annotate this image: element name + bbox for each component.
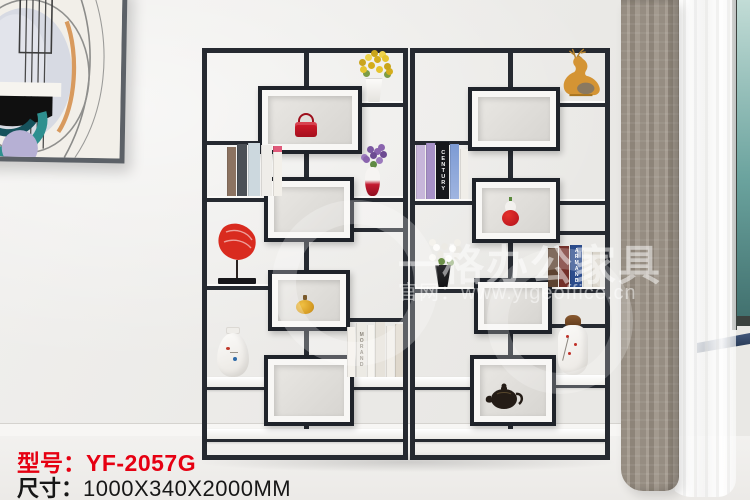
display-box bbox=[474, 278, 552, 334]
frame-connector bbox=[508, 53, 513, 87]
book-spine-morand: MORAND bbox=[356, 323, 366, 377]
marble-shelf bbox=[207, 377, 264, 390]
product-photo-scene: MORAND CENTURY bbox=[0, 0, 750, 500]
marble-shelf bbox=[415, 377, 470, 390]
shelf-ledge bbox=[544, 287, 605, 293]
white-porcelain-vase bbox=[217, 327, 249, 377]
white-book-set: MORAND bbox=[347, 321, 403, 377]
book-spine-armand: ARMAND bbox=[570, 245, 582, 287]
book-spine-century: CENTURY bbox=[436, 142, 449, 199]
frame-post bbox=[605, 48, 610, 460]
shelf-ledge bbox=[415, 287, 474, 293]
frame-bar-floor bbox=[410, 455, 610, 460]
gold-pumpkin-ornament bbox=[296, 295, 314, 314]
yellow-flowers-bucket bbox=[352, 50, 396, 101]
size-value: 1000X340X2000MM bbox=[83, 476, 291, 500]
marble-shelf bbox=[346, 377, 403, 390]
red-handbag bbox=[295, 113, 317, 137]
marble-shelf bbox=[548, 375, 605, 388]
frame-bar bbox=[346, 228, 403, 232]
model-line: 型号：YF-2057G bbox=[17, 450, 291, 476]
purple-flowers-vase bbox=[356, 144, 388, 196]
display-shelf: MORAND CENTURY bbox=[0, 0, 750, 500]
frame-post bbox=[403, 48, 408, 460]
book-set-armand: ARMAND bbox=[548, 244, 600, 287]
model-label: 型号： bbox=[17, 450, 86, 476]
shelf-ledge bbox=[346, 196, 403, 202]
product-caption: 型号：YF-2057G 尺寸：1000X340X2000MM bbox=[17, 450, 291, 500]
gold-deer-figurine bbox=[556, 47, 604, 101]
marble-shelf-bottom bbox=[207, 429, 403, 442]
black-teapot bbox=[482, 380, 526, 410]
frame-post bbox=[202, 48, 207, 460]
size-line: 尺寸：1000X340X2000MM bbox=[17, 476, 291, 500]
shelf-ledge bbox=[207, 196, 264, 202]
book-set bbox=[227, 143, 282, 196]
size-label: 尺寸： bbox=[17, 476, 83, 500]
book-set-century: CENTURY bbox=[416, 141, 468, 199]
red-gourd-vase bbox=[502, 197, 519, 228]
marble-shelf-bottom bbox=[415, 429, 605, 442]
model-value: YF-2057G bbox=[86, 450, 196, 476]
frame-connector bbox=[304, 53, 309, 86]
display-box bbox=[468, 87, 560, 151]
red-coral-sculpture bbox=[212, 218, 260, 286]
frame-post bbox=[410, 48, 415, 460]
display-box bbox=[264, 355, 354, 426]
shelf-ledge bbox=[415, 199, 472, 205]
white-flowers-black-pot bbox=[424, 241, 462, 287]
floral-painted-vase bbox=[558, 315, 588, 375]
